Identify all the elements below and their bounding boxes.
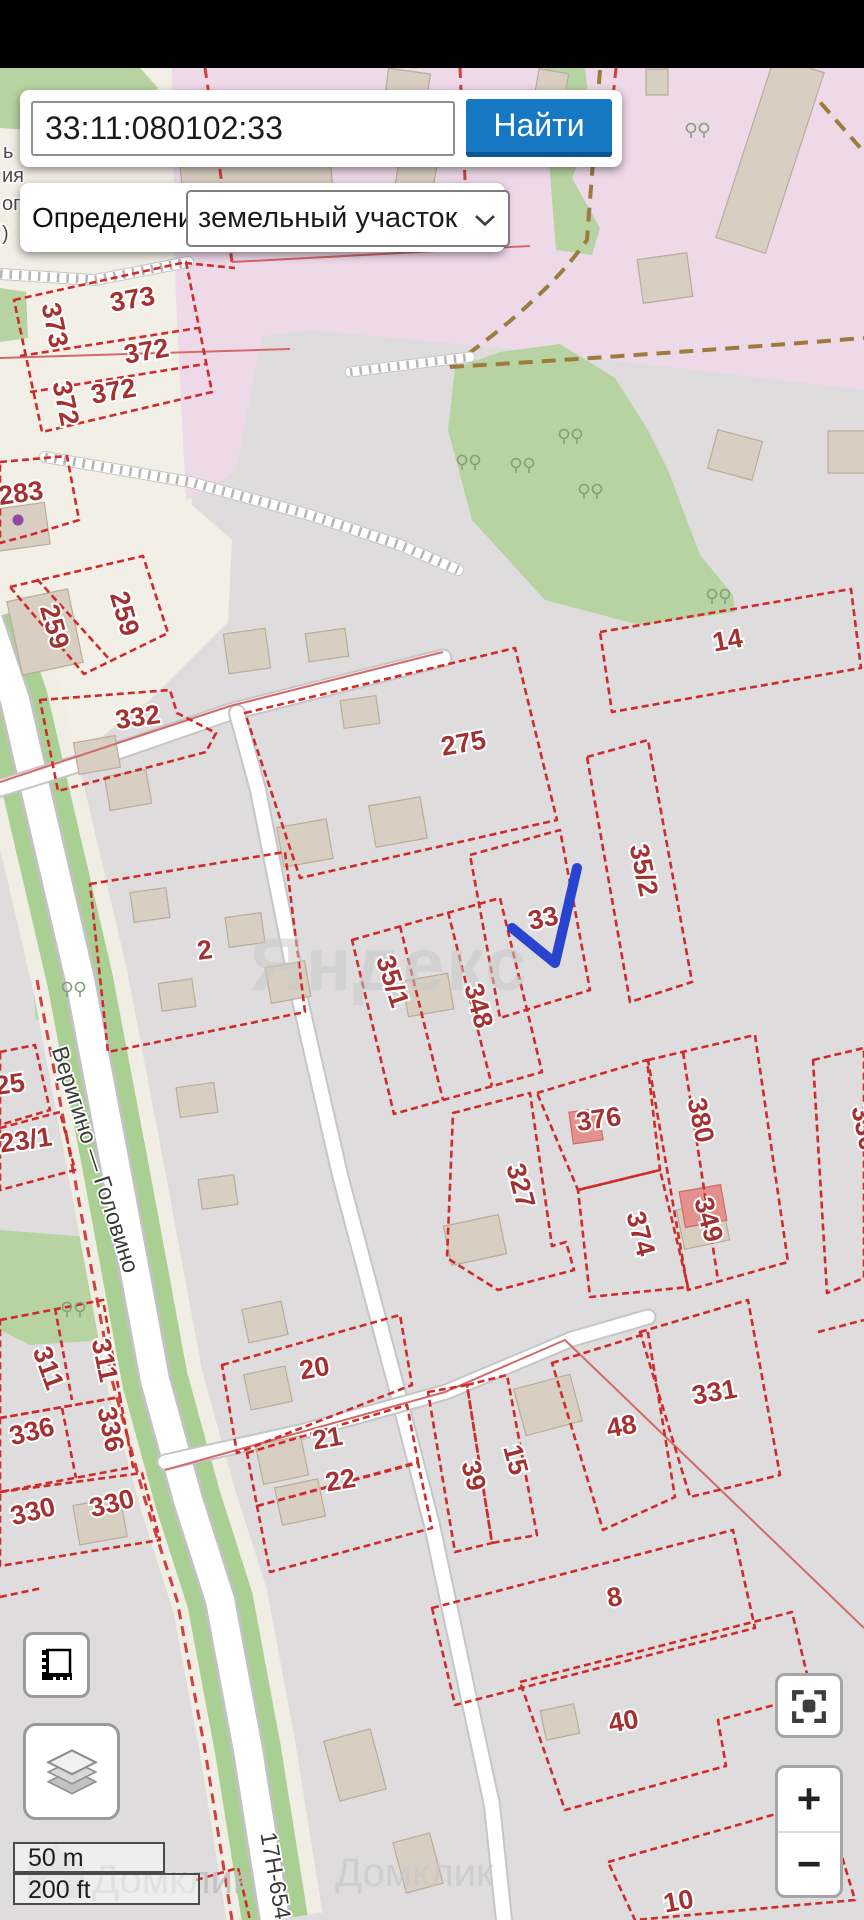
cadastral-map-app: Яндекс Домклик Домклик 37337337237237228…: [0, 0, 864, 1920]
scale-bar-metric: 50 m: [13, 1842, 165, 1873]
parcel-label: 14: [710, 623, 745, 658]
building: [104, 770, 151, 811]
building: [176, 1083, 218, 1118]
measure-button[interactable]: [23, 1632, 90, 1698]
building: [305, 628, 349, 661]
svg-text:Домклик: Домклик: [335, 1851, 494, 1895]
building: [198, 1175, 238, 1210]
parcel-label: 283: [0, 475, 45, 511]
building: [158, 979, 196, 1011]
building: [130, 888, 170, 923]
parcel-label: 40: [606, 1704, 641, 1739]
locate-button[interactable]: [775, 1673, 843, 1738]
definition-selected-value: земельный участок: [198, 202, 457, 235]
find-button[interactable]: Найти: [466, 99, 612, 157]
street-label-partial: ия: [2, 165, 24, 187]
parcel-label: 376: [574, 1101, 623, 1137]
zoom-out-button[interactable]: −: [778, 1831, 840, 1896]
point-marker: [13, 515, 24, 526]
parcel-label: 332: [113, 699, 162, 735]
parcel-label: 20: [297, 1351, 332, 1386]
building: [540, 1704, 579, 1740]
layers-icon: [44, 1746, 100, 1798]
status-bar: [0, 0, 864, 68]
parcel-label: 48: [604, 1409, 639, 1444]
building: [275, 1479, 326, 1525]
zoom-control: + −: [775, 1765, 843, 1898]
building: [369, 797, 428, 847]
zoom-in-button[interactable]: +: [778, 1768, 840, 1831]
chevron-down-icon: [474, 214, 496, 227]
parcel-label: 25: [0, 1067, 27, 1101]
scale-bar-imperial: 200 ft: [13, 1873, 200, 1905]
building: [646, 69, 668, 95]
layers-button[interactable]: [23, 1723, 120, 1820]
building: [244, 1366, 293, 1410]
building: [277, 819, 333, 867]
focus-icon: [791, 1688, 827, 1724]
ruler-icon: [39, 1647, 75, 1683]
map[interactable]: Яндекс Домклик Домклик 37337337237237228…: [0, 0, 864, 1920]
building: [637, 253, 693, 304]
definition-panel: Определение: земельный участок: [20, 183, 505, 252]
street-label-partial: ): [2, 223, 9, 245]
search-panel: Найти: [20, 90, 622, 167]
parcel-label: 22: [323, 1463, 358, 1498]
search-input[interactable]: [31, 101, 455, 156]
building: [242, 1301, 288, 1343]
street-label-partial: ь: [3, 141, 13, 163]
parcel-label: 33: [525, 900, 561, 936]
building: [223, 628, 270, 673]
parcel-label: 21: [310, 1421, 345, 1456]
building: [828, 431, 864, 473]
building: [340, 696, 380, 729]
definition-select[interactable]: земельный участок: [186, 190, 510, 247]
parcel-label: 10: [661, 1884, 696, 1919]
